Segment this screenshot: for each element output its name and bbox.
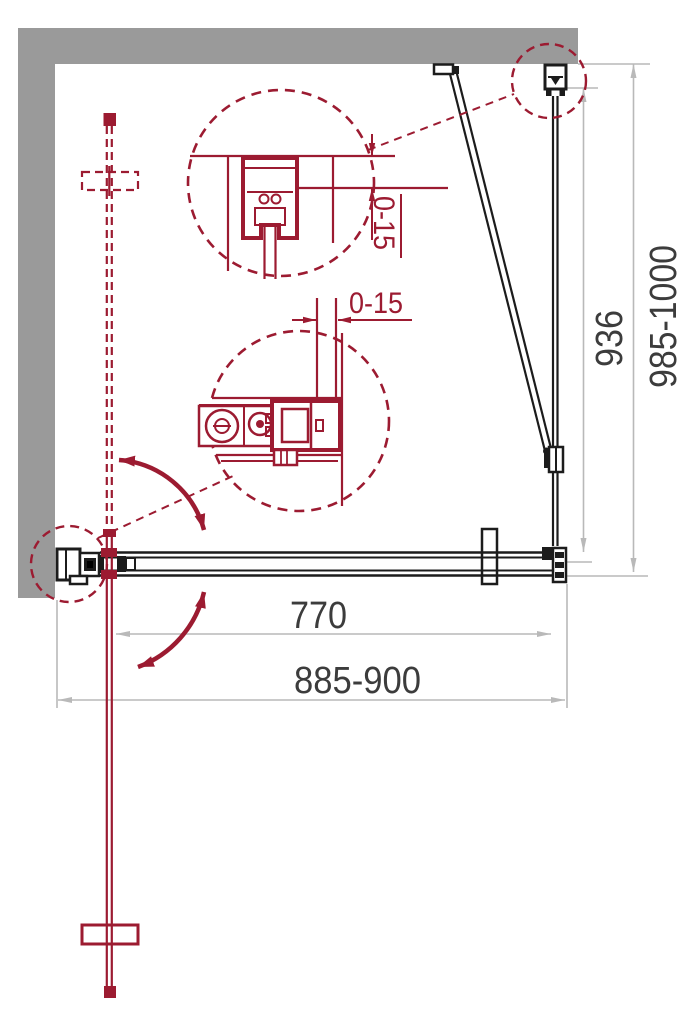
detail-hinge-foot-bracket: [274, 450, 297, 465]
leader-line-hinge-detail: [98, 476, 233, 538]
top-wall-profile-leg-right: [560, 89, 566, 96]
dimension-936: 936: [584, 88, 632, 552]
top-wall-profile-leg-left: [546, 89, 552, 96]
left-wall-profile-hinge: [57, 549, 135, 584]
swing-arc-lower: [138, 592, 204, 667]
door-rail-joint-bottom: [101, 570, 117, 579]
top-wall-profile: [545, 65, 566, 96]
dimension-lines: 936 985-1000 770 885-900: [57, 64, 685, 708]
front-panel-rail: [87, 553, 566, 576]
corner-profile-stripe-1: [555, 552, 564, 558]
door-cap-bottom: [104, 986, 116, 998]
detail-view-top-profile: 0-15: [188, 90, 448, 279]
door-handle-solid: [82, 925, 138, 944]
glass-structure: [57, 65, 566, 585]
profile-foot: [70, 576, 87, 584]
dimension-label-adjust-top: 0-15: [367, 196, 400, 250]
detail-dimension-0-15-side: 0-15: [292, 287, 412, 320]
door-cap-top: [104, 113, 117, 126]
dimension-label-total-depth: 985-1000: [643, 245, 685, 388]
dimension-label-side-panel: 936: [589, 310, 631, 367]
wall-l-shape: [18, 28, 578, 598]
dimension-label-door-opening: 770: [290, 595, 347, 637]
shower-enclosure-plan-drawing: 936 985-1000 770 885-900: [0, 0, 698, 1024]
dimension-770: 770: [116, 595, 551, 637]
dimension-label-total-width: 885-900: [294, 660, 421, 702]
dimension-885-900: 885-900: [58, 660, 565, 702]
door-dashed-position: [82, 113, 138, 527]
wall-surface: [18, 28, 578, 598]
dimension-label-adjust-side: 0-15: [349, 287, 403, 320]
detail-hinge-screw-center: [256, 420, 264, 428]
support-bar-bracket-joint: [452, 66, 459, 74]
hinge-carrier-block: [117, 556, 126, 572]
support-bar-edge-right: [457, 72, 552, 449]
dimension-985-1000: 985-1000: [634, 64, 686, 572]
door-and-details: 0-15: [31, 44, 586, 998]
hinge-carrier-plate: [126, 558, 135, 570]
support-bar-clamp-tab: [544, 452, 550, 468]
detail-dimension-0-15-top: 0-15: [367, 134, 401, 258]
side-glass-panel: [553, 96, 558, 546]
support-bar: [434, 65, 563, 473]
door-rail-joint-top: [101, 548, 117, 557]
support-bar-wall-bracket: [434, 65, 453, 75]
corner-profile-stripe-2: [555, 562, 564, 568]
door-solid-position: [82, 529, 138, 998]
technical-drawing-page: 936 985-1000 770 885-900: [0, 0, 698, 1024]
support-bar-edge-left: [450, 74, 545, 451]
hinge-slot: [87, 561, 93, 568]
corner-profile-stripe-3: [555, 572, 564, 578]
leader-line-top-detail: [368, 94, 514, 150]
